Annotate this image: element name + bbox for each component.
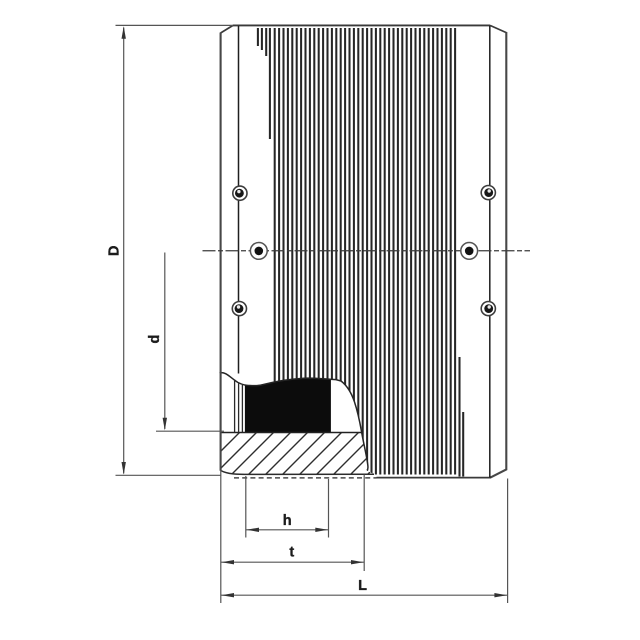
svg-text:d: d <box>147 335 163 344</box>
svg-text:h: h <box>283 513 292 529</box>
svg-text:D: D <box>107 246 123 256</box>
svg-text:L: L <box>358 578 367 594</box>
svg-text:t: t <box>289 545 294 561</box>
